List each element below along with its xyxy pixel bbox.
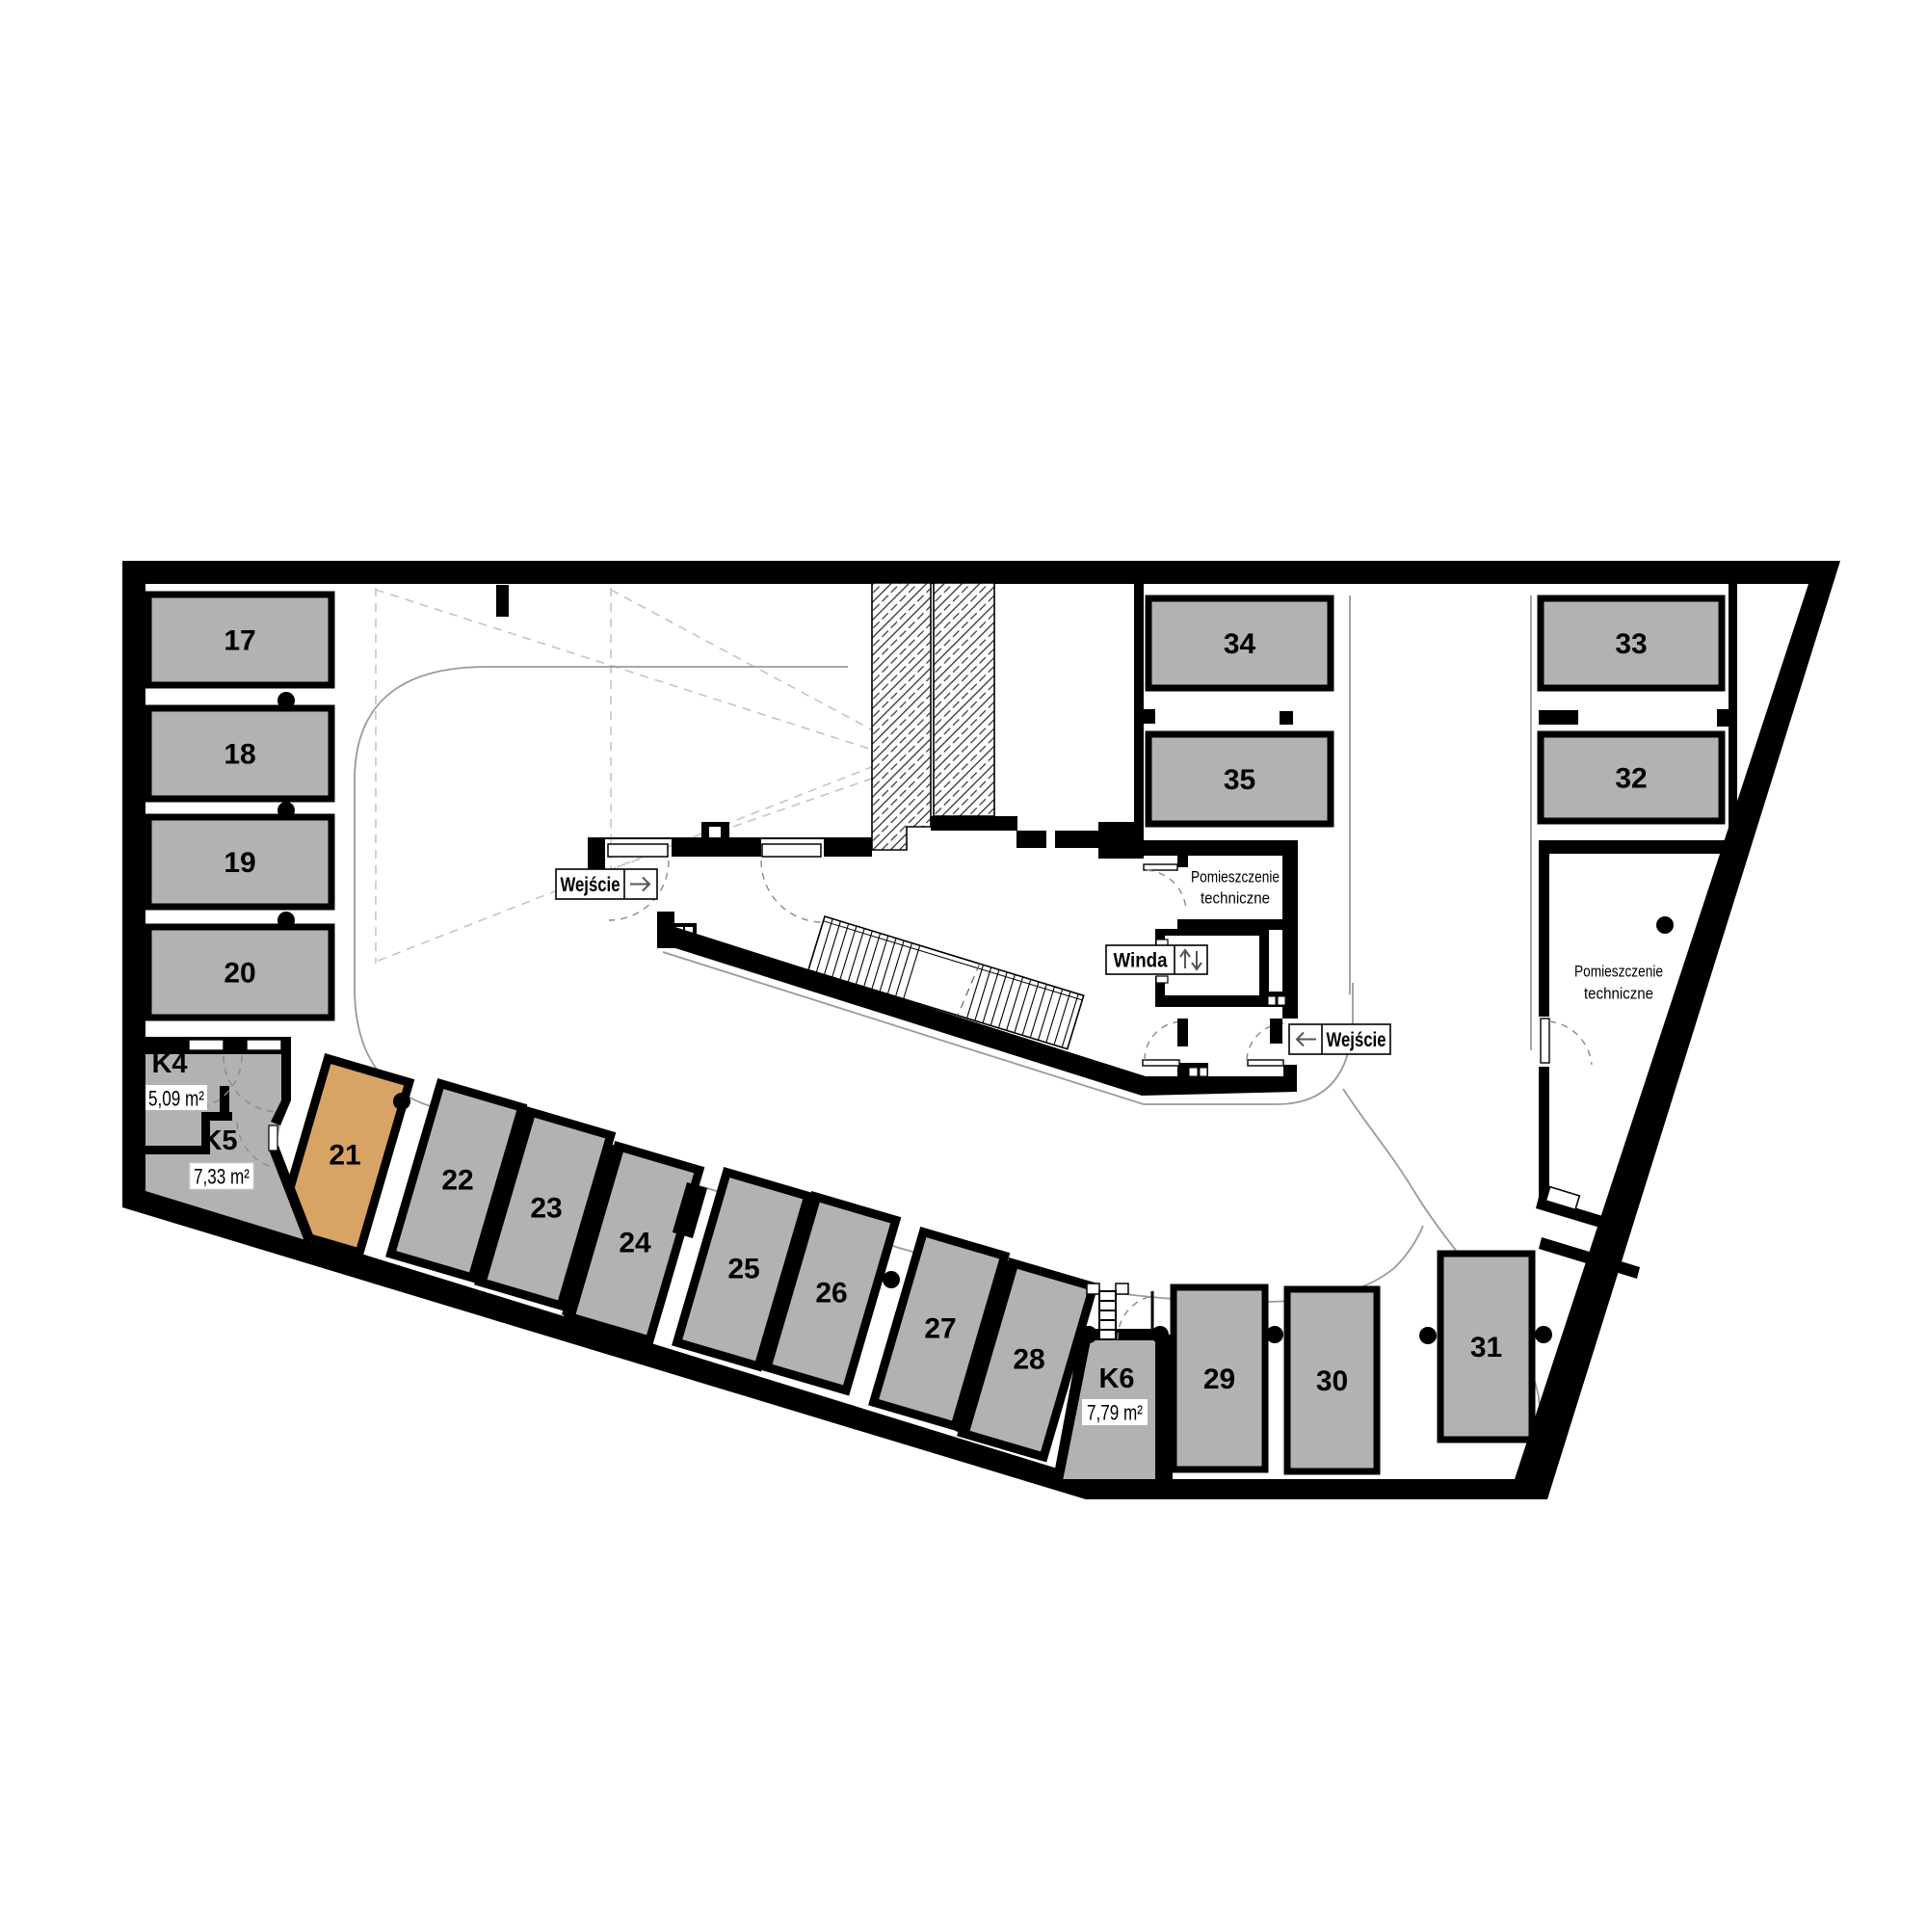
- svg-text:29: 29: [1203, 1363, 1235, 1395]
- svg-text:22: 22: [441, 1165, 473, 1197]
- svg-text:17: 17: [224, 625, 255, 657]
- svg-text:27: 27: [924, 1313, 956, 1345]
- svg-text:21: 21: [329, 1140, 360, 1172]
- svg-text:24: 24: [619, 1228, 651, 1259]
- svg-text:25: 25: [727, 1254, 759, 1285]
- svg-text:Winda: Winda: [1114, 950, 1168, 972]
- svg-text:23: 23: [530, 1193, 562, 1225]
- svg-text:techniczne: techniczne: [1201, 889, 1270, 908]
- svg-text:20: 20: [224, 958, 255, 990]
- svg-text:35: 35: [1224, 764, 1255, 796]
- svg-text:Wejście: Wejście: [1327, 1029, 1386, 1051]
- svg-text:techniczne: techniczne: [1584, 985, 1653, 1003]
- svg-text:K6: K6: [1098, 1363, 1134, 1394]
- svg-text:Pomieszczenie: Pomieszczenie: [1191, 868, 1280, 887]
- svg-text:31: 31: [1470, 1332, 1502, 1363]
- svg-text:7,79 m²: 7,79 m²: [1087, 1401, 1143, 1425]
- svg-text:5,09 m²: 5,09 m²: [148, 1087, 204, 1111]
- svg-text:18: 18: [224, 739, 255, 771]
- svg-text:28: 28: [1013, 1344, 1044, 1376]
- svg-text:34: 34: [1224, 628, 1256, 660]
- svg-text:32: 32: [1615, 763, 1647, 795]
- svg-text:19: 19: [224, 847, 255, 879]
- svg-text:7,33 m²: 7,33 m²: [194, 1165, 250, 1189]
- svg-text:33: 33: [1615, 628, 1647, 660]
- svg-text:K5: K5: [201, 1125, 237, 1156]
- svg-text:K4: K4: [151, 1048, 187, 1079]
- svg-text:30: 30: [1316, 1365, 1348, 1397]
- svg-text:26: 26: [815, 1278, 847, 1310]
- svg-text:Wejście: Wejście: [561, 874, 620, 896]
- svg-text:Pomieszczenie: Pomieszczenie: [1574, 963, 1663, 981]
